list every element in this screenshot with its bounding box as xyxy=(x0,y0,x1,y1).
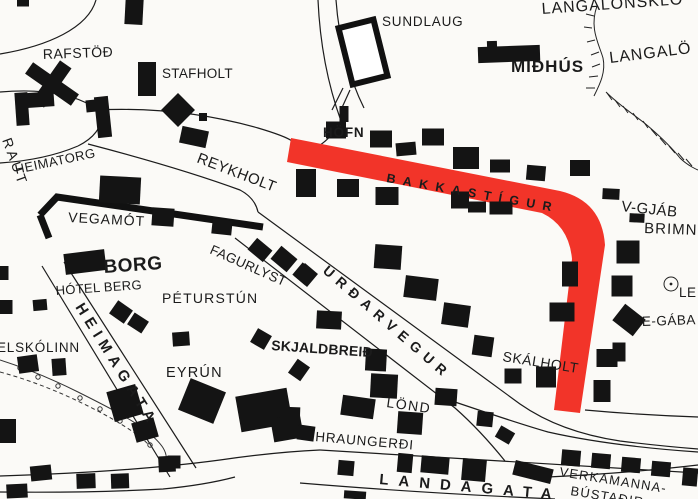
label-midhus: MIÐHÚS xyxy=(511,57,584,76)
building xyxy=(550,303,575,322)
building xyxy=(127,312,149,333)
building xyxy=(682,467,698,486)
building xyxy=(403,275,438,301)
building xyxy=(453,147,479,169)
label-lond: LÖND xyxy=(386,393,433,416)
building xyxy=(17,0,29,7)
building xyxy=(99,175,141,204)
label-skjaldbreid: SKJALDBREIÐ xyxy=(271,337,374,360)
building xyxy=(30,464,52,481)
building xyxy=(0,300,13,314)
building xyxy=(526,165,546,182)
building xyxy=(617,241,640,264)
building xyxy=(422,129,444,146)
building xyxy=(612,276,633,297)
building xyxy=(602,188,620,200)
building xyxy=(297,424,316,441)
label-brimn: BRIMN xyxy=(644,220,698,239)
label-hotel-berg: HÓTEL BERG xyxy=(55,277,142,298)
building xyxy=(158,456,176,473)
building xyxy=(0,419,16,443)
label-sundlaug: SUNDLAUG xyxy=(382,14,463,29)
label-eyrun: EYRÚN xyxy=(166,364,223,381)
building xyxy=(374,244,403,270)
label-v-gjab: V-GJÁB xyxy=(621,198,679,221)
building xyxy=(76,473,96,489)
building xyxy=(161,93,195,127)
building xyxy=(441,302,471,328)
building xyxy=(337,179,359,197)
label-stafholt: STAFHOLT xyxy=(162,66,233,81)
building xyxy=(288,359,310,382)
building xyxy=(597,349,618,367)
label-rafstod: RAFSTÖÐ xyxy=(43,43,114,62)
label-borg: BORG xyxy=(103,253,163,278)
cliff-hachures xyxy=(584,6,698,170)
building xyxy=(109,300,133,323)
building xyxy=(316,310,342,329)
building xyxy=(179,126,209,148)
label-elskolinn: ELSKÓLINN xyxy=(0,340,80,355)
building xyxy=(591,453,611,470)
building xyxy=(340,395,375,419)
building xyxy=(505,369,522,384)
building xyxy=(14,92,29,126)
building xyxy=(296,169,316,197)
building xyxy=(63,249,106,275)
building xyxy=(376,187,399,205)
building xyxy=(570,160,590,176)
building xyxy=(85,100,96,113)
label-e-gaba: E-GÁBA xyxy=(642,312,697,329)
building xyxy=(151,207,174,226)
building xyxy=(111,473,130,489)
building xyxy=(294,263,318,287)
building xyxy=(562,262,578,287)
building xyxy=(344,490,367,499)
map-viewport[interactable]: SUNDLAUG LANGALÓNSKLÖ LANGALÖ MIÐHÚS RAF… xyxy=(0,0,698,499)
building xyxy=(420,455,449,474)
building xyxy=(434,388,457,406)
building xyxy=(476,411,493,428)
label-langalonsklo: LANGALÓNSKLÖ xyxy=(541,0,684,18)
building xyxy=(17,354,39,374)
label-le: LE xyxy=(679,285,697,300)
building xyxy=(51,358,66,376)
building xyxy=(395,142,416,157)
building xyxy=(397,453,414,473)
label-peturstun: PÉTURSTÚN xyxy=(162,290,258,306)
building xyxy=(124,0,143,25)
building xyxy=(490,160,510,173)
point-feature-dot xyxy=(670,283,673,286)
building xyxy=(33,299,48,311)
building xyxy=(621,457,641,474)
building xyxy=(0,266,9,280)
building xyxy=(211,218,232,235)
building xyxy=(337,460,354,476)
building xyxy=(397,411,423,435)
label-vegamot: VEGAMÓT xyxy=(68,209,146,229)
label-hofn: HÖFN xyxy=(323,125,364,140)
map-canvas[interactable]: SUNDLAUG LANGALÓNSKLÖ LANGALÖ MIÐHÚS RAF… xyxy=(0,0,698,499)
building xyxy=(138,62,156,96)
building xyxy=(612,304,645,337)
building xyxy=(280,407,301,426)
building xyxy=(468,202,486,213)
building xyxy=(199,113,207,121)
label-langalo: LANGALÖ xyxy=(608,39,692,67)
building xyxy=(172,331,190,346)
building xyxy=(487,41,497,49)
building xyxy=(651,461,671,478)
building xyxy=(495,425,515,444)
building xyxy=(250,328,272,350)
building xyxy=(472,335,495,358)
building xyxy=(6,483,28,498)
building xyxy=(340,106,349,122)
building xyxy=(178,378,226,424)
building xyxy=(594,380,611,402)
building xyxy=(370,131,392,148)
swimming-pool-outline xyxy=(339,20,388,85)
